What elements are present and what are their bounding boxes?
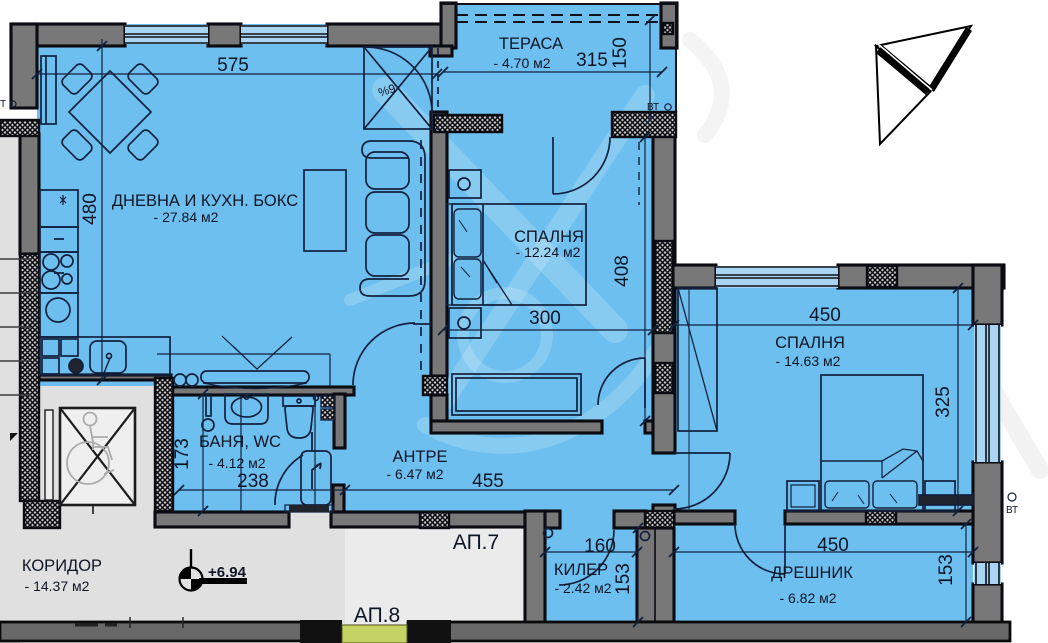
svg-text:- 2.42 м2: - 2.42 м2	[554, 580, 611, 596]
svg-text:- 12.24 м2: - 12.24 м2	[516, 244, 581, 260]
svg-text:Т: Т	[0, 99, 6, 110]
svg-text:ТЕРАСА: ТЕРАСА	[499, 35, 563, 53]
svg-text:БАНЯ, WC: БАНЯ, WC	[199, 433, 281, 451]
svg-text:325: 325	[933, 386, 954, 418]
svg-text:173: 173	[172, 438, 193, 470]
svg-text:408: 408	[612, 255, 633, 287]
svg-text:- 14.37 м2: - 14.37 м2	[25, 578, 90, 594]
svg-text:АП.8: АП.8	[354, 604, 400, 627]
svg-text:- 4.12 м2: - 4.12 м2	[208, 455, 265, 471]
svg-text:160: 160	[584, 536, 616, 557]
svg-text:+6.94: +6.94	[208, 564, 247, 581]
svg-text:455: 455	[472, 471, 504, 492]
svg-text:450: 450	[817, 535, 849, 556]
svg-text:150: 150	[610, 37, 631, 69]
svg-text:ВТ: ВТ	[1006, 505, 1018, 516]
svg-text:153: 153	[613, 563, 634, 595]
svg-text:- 6.47 м2: - 6.47 м2	[386, 466, 443, 482]
svg-text:- 6.82 м2: - 6.82 м2	[779, 590, 836, 606]
svg-text:153: 153	[936, 554, 957, 586]
svg-text:- 27.84 м2: - 27.84 м2	[154, 209, 219, 225]
svg-text:ДРЕШНИК: ДРЕШНИК	[771, 564, 853, 582]
svg-text:450: 450	[809, 305, 841, 326]
svg-text:238: 238	[237, 471, 269, 492]
svg-text:ВТ: ВТ	[647, 102, 659, 113]
svg-text:АП.7: АП.7	[453, 531, 499, 554]
svg-text:КОРИДОР: КОРИДОР	[22, 557, 102, 575]
svg-text:480: 480	[80, 193, 101, 225]
svg-text:300: 300	[529, 308, 561, 329]
svg-text:АНТРЕ: АНТРЕ	[392, 448, 447, 466]
svg-text:СПАЛНЯ: СПАЛНЯ	[775, 334, 845, 352]
svg-text:315: 315	[576, 50, 608, 71]
svg-text:- 4.70 м2: - 4.70 м2	[493, 55, 550, 71]
svg-text:ДНЕВНА И КУХН. БОКС: ДНЕВНА И КУХН. БОКС	[112, 192, 298, 210]
svg-text:575: 575	[217, 55, 249, 76]
svg-text:- 14.63 м2: - 14.63 м2	[776, 353, 841, 369]
svg-text:КИЛЕР: КИЛЕР	[554, 561, 608, 579]
